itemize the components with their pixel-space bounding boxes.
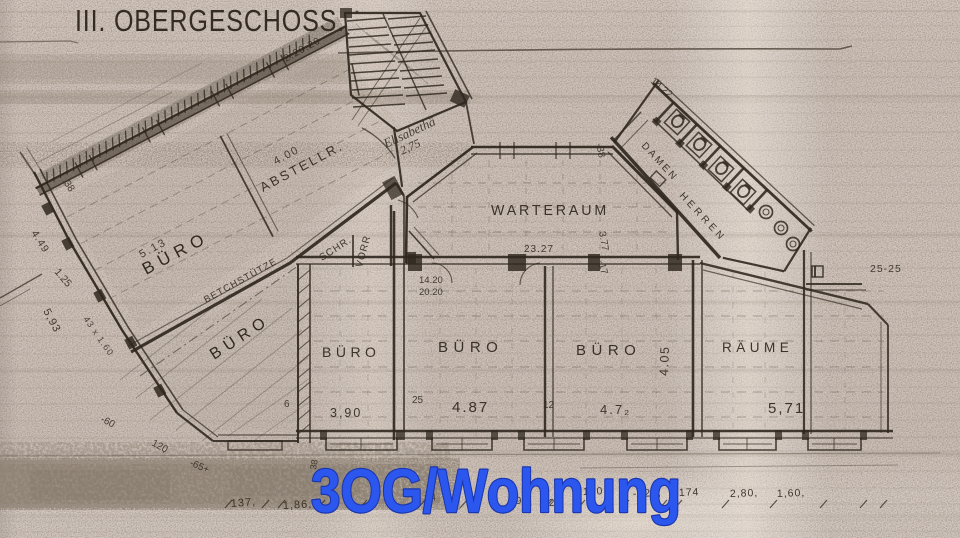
svg-text:4.05: 4.05 xyxy=(657,345,672,376)
svg-text:14.20: 14.20 xyxy=(419,275,443,286)
svg-text:3OG/Wohnung: 3OG/Wohnung xyxy=(311,457,681,525)
svg-text:BÜRO: BÜRO xyxy=(438,338,503,356)
svg-text:137,: 137, xyxy=(230,496,256,510)
svg-text:23.27: 23.27 xyxy=(524,244,554,255)
svg-text:25: 25 xyxy=(412,395,424,406)
svg-text:1,86,: 1,86, xyxy=(283,498,313,512)
svg-text:RÄUME: RÄUME xyxy=(722,340,793,355)
svg-text:25-25: 25-25 xyxy=(870,263,902,275)
svg-text:12: 12 xyxy=(543,400,555,411)
svg-text:BÜRO: BÜRO xyxy=(322,343,380,360)
svg-text:5,71: 5,71 xyxy=(768,400,805,417)
svg-text:174: 174 xyxy=(679,486,700,499)
svg-text:4.87: 4.87 xyxy=(452,399,489,416)
svg-text:III. OBERGESCHOSS.: III. OBERGESCHOSS. xyxy=(75,3,345,38)
svg-text:6: 6 xyxy=(284,399,290,410)
svg-text:1,60,: 1,60, xyxy=(777,487,806,500)
svg-text:BÜRO: BÜRO xyxy=(576,341,641,359)
svg-text:WARTERAUM: WARTERAUM xyxy=(491,202,609,219)
svg-text:3,90: 3,90 xyxy=(330,406,362,420)
svg-text:4.7₂: 4.7₂ xyxy=(600,402,631,417)
svg-text:2,80,: 2,80, xyxy=(730,487,759,500)
svg-text:20.20: 20.20 xyxy=(419,287,443,298)
